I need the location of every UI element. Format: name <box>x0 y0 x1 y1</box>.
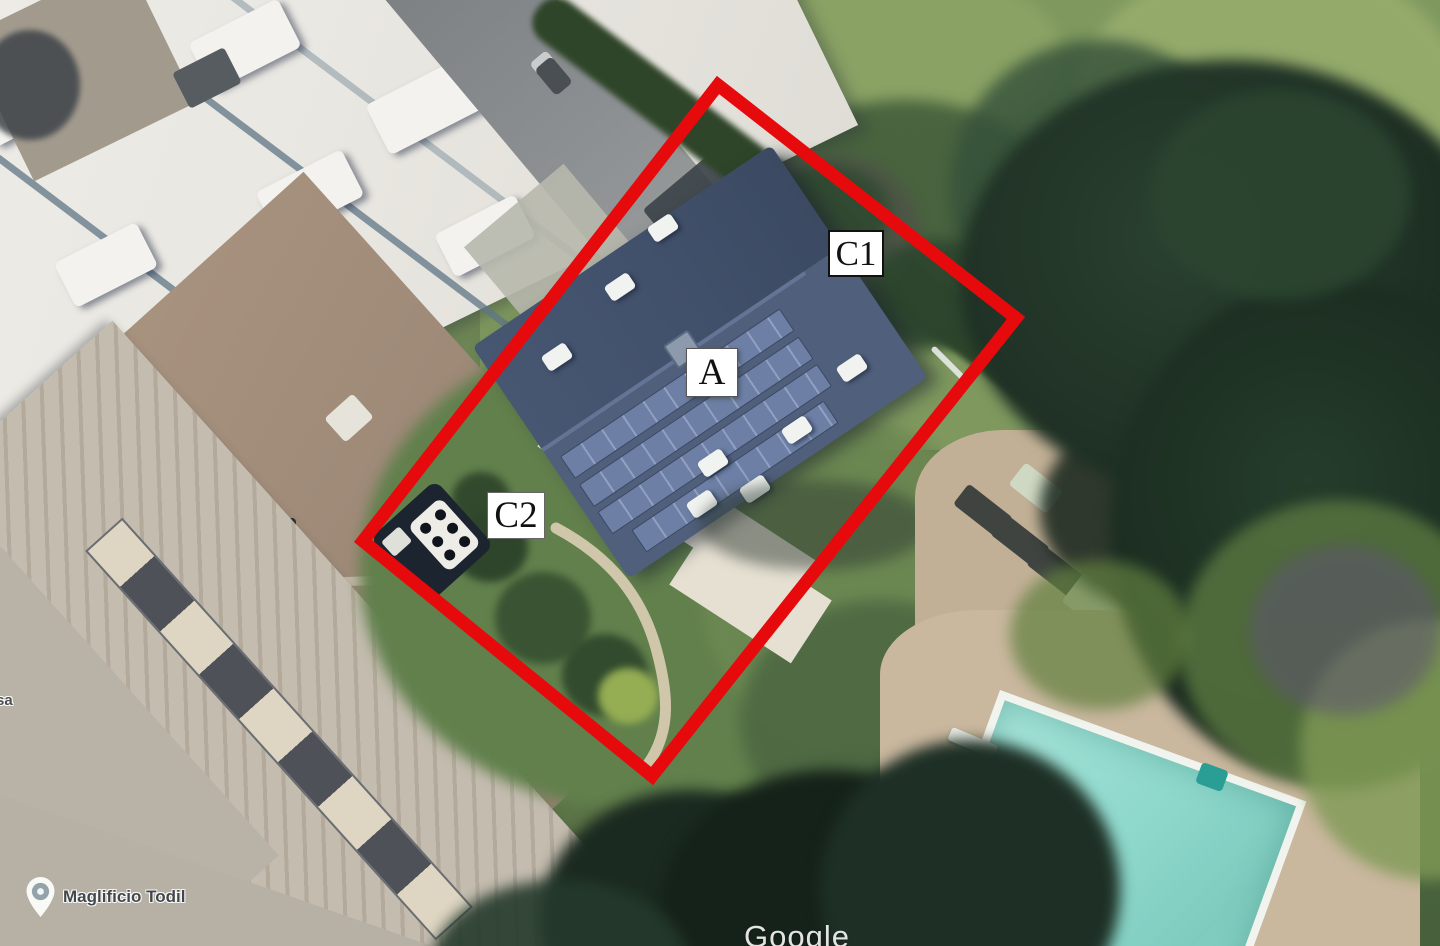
map-pin-label[interactable]: Maglificio Todil <box>63 887 185 907</box>
edge-place-label-fragment: sa <box>0 692 13 709</box>
spa-seat <box>441 547 457 563</box>
aerial-satellite-image: Google sa Maglificio Todil C1 A C2 <box>0 0 1440 946</box>
tree-foliage-purple <box>1250 545 1440 715</box>
spa-seat <box>444 520 460 536</box>
tree-canopy <box>1150 90 1410 300</box>
google-watermark: Google <box>744 919 850 946</box>
tree-foliage-light <box>1010 560 1190 710</box>
spa-cover <box>381 526 412 557</box>
annotation-label-c2: C2 <box>487 492 545 539</box>
spa-seat <box>432 507 448 523</box>
shrub-light <box>598 668 658 724</box>
spa-seat <box>417 520 433 536</box>
map-poi[interactable]: Maglificio Todil <box>24 876 185 918</box>
spa-seat <box>456 534 472 550</box>
map-pin-icon[interactable] <box>24 876 57 918</box>
annotation-label-a: A <box>686 348 738 397</box>
house-shadow <box>700 480 930 570</box>
annotation-label-c1: C1 <box>828 230 884 277</box>
spa-seat <box>429 534 445 550</box>
